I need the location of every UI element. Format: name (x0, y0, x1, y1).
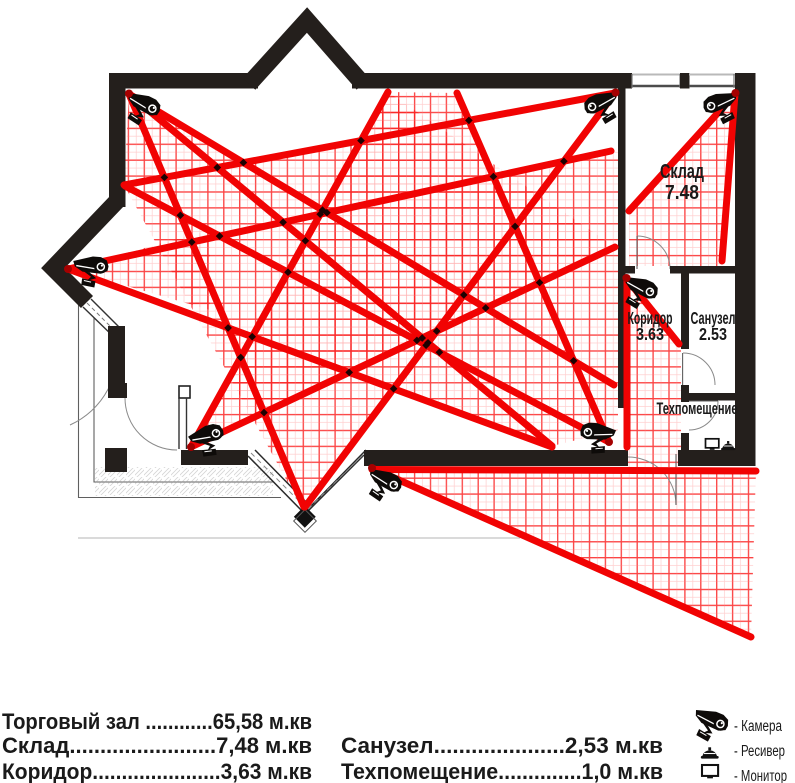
svg-text:Склад........................7: Склад........................7,48 м.кв (2, 733, 312, 758)
svg-text:7.48: 7.48 (665, 182, 699, 204)
svg-text:2.53: 2.53 (699, 324, 727, 344)
svg-text:Техпомещение..............1,0: Техпомещение..............1,0 м.кв (341, 759, 663, 783)
svg-text:3.63: 3.63 (636, 324, 664, 344)
svg-text:Коридор......................3: Коридор......................3,63 м.кв (2, 759, 312, 783)
svg-text:- Монитор: - Монитор (734, 768, 787, 783)
svg-text:Техпомещение: Техпомещение (657, 400, 738, 418)
svg-text:Торговый зал ............65,58: Торговый зал ............65,58 м.кв (2, 709, 312, 734)
svg-text:Санузел.....................2,: Санузел.....................2,53 м.кв (341, 733, 663, 758)
svg-text:- Ресивер: - Ресивер (734, 743, 785, 760)
svg-text:Склад: Склад (660, 161, 704, 183)
svg-text:- Камера: - Камера (734, 718, 782, 735)
